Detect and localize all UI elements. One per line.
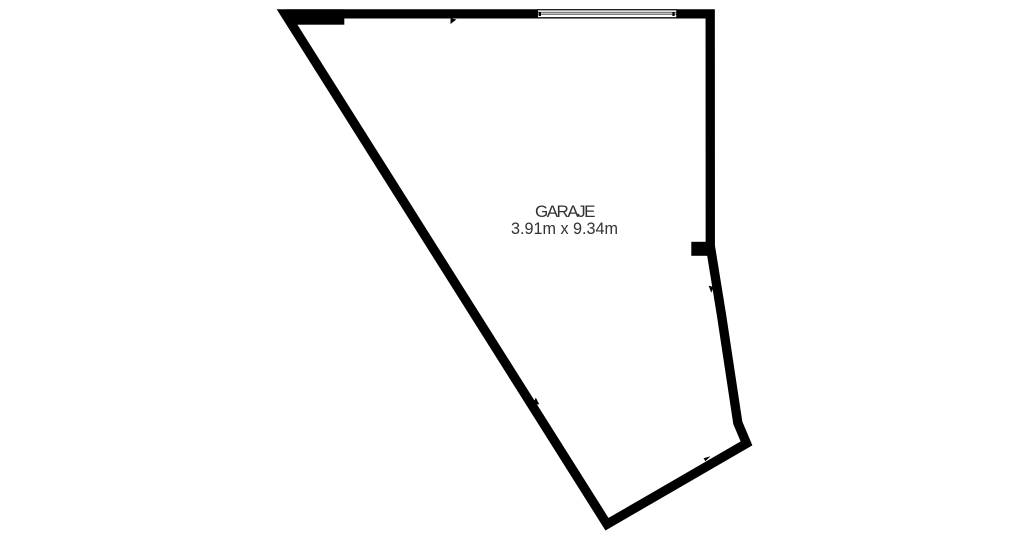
svg-text:GARAJE: GARAJE (535, 202, 595, 221)
svg-text:3.91m x 9.34m: 3.91m x 9.34m (511, 220, 618, 238)
